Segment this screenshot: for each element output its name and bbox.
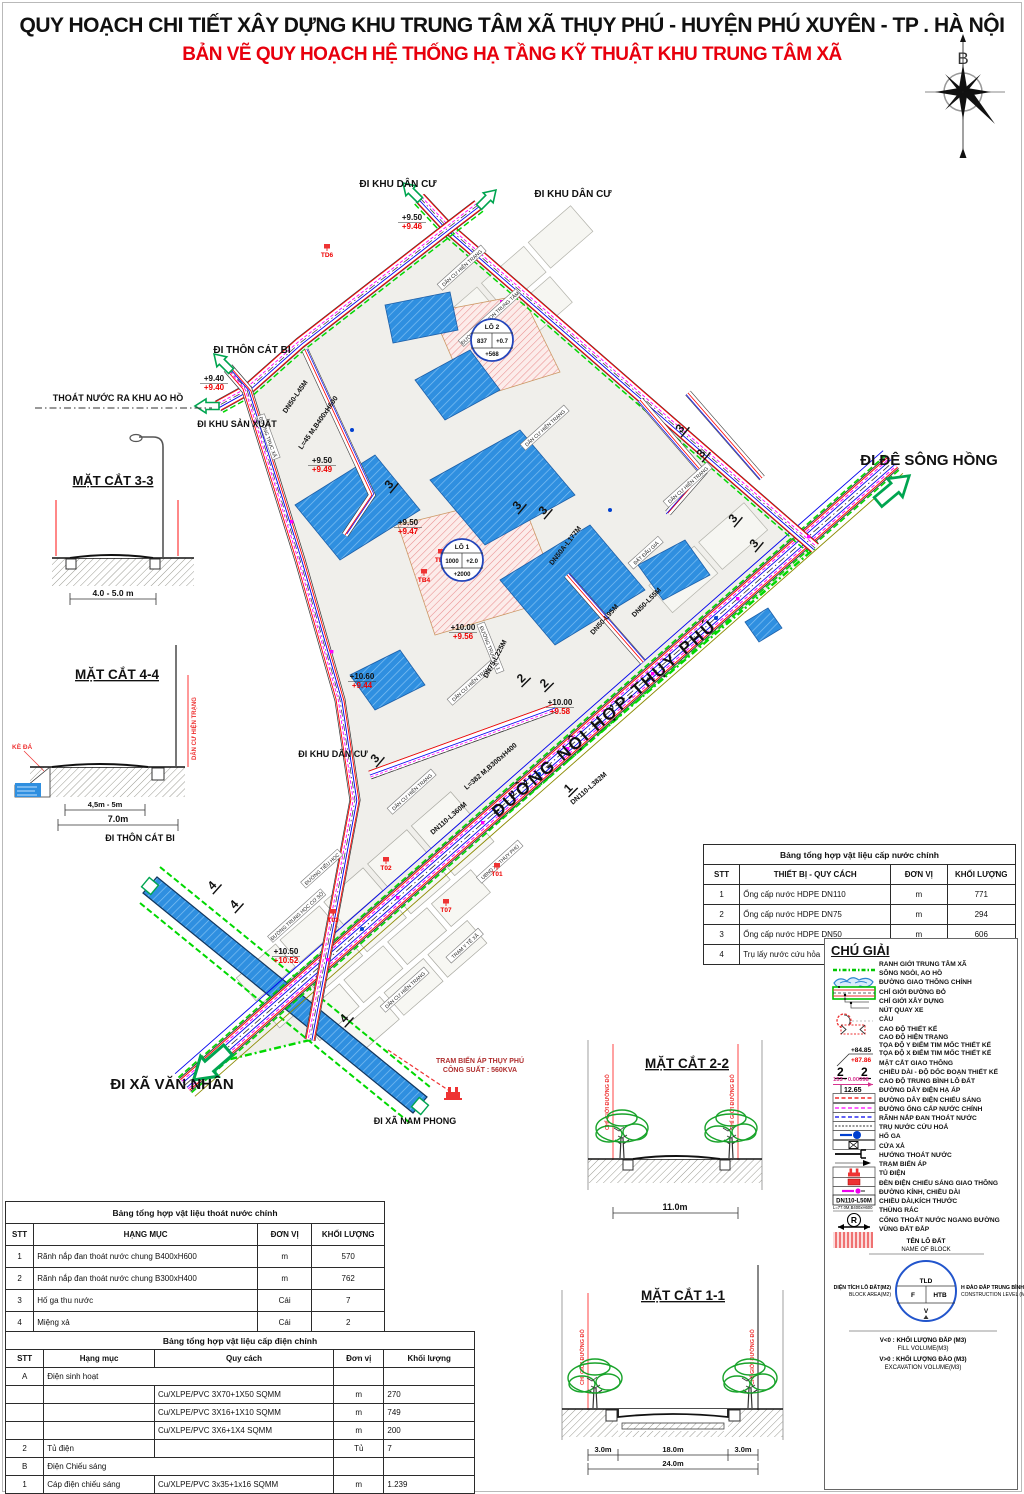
table-cell: 1 (704, 885, 740, 905)
column-header: STT (704, 865, 740, 885)
substation-icon (443, 899, 449, 904)
right-label: DÂN CƯ HIỆN TRẠNG (190, 697, 198, 760)
design-elevation-label: +9.50 (312, 456, 333, 465)
legend-item-label: THÙNG RÁC (879, 1207, 919, 1215)
existing-elevation-label: +9.56 (453, 632, 474, 641)
legend-item-label: ĐƯỜNG KÍNH, CHIỀU DÀI (879, 1189, 960, 1197)
legend-item-label: ĐƯỜNG GIAO THÔNG CHÍNH (879, 979, 972, 987)
table-cell: Tủ điện (44, 1440, 155, 1458)
column-header: Khối lượng (384, 1350, 475, 1368)
svg-text:CONSTRUCTION LEVEL (M): CONSTRUCTION LEVEL (M) (961, 1292, 1024, 1298)
table-cell: 3 (6, 1290, 34, 1312)
table-header-row: STTTHIẾT BỊ - QUY CÁCHĐƠN VỊKHỐI LƯỢNG (704, 865, 1016, 885)
table-header-row: STTHẠNG MỤCĐƠN VỊKHỐI LƯỢNG (6, 1224, 385, 1246)
lot-level: +2.0 (466, 559, 479, 565)
column-header: Đơn vị (334, 1350, 384, 1368)
legend-item-label: TRỤ NƯỚC CỨU HOẢ (879, 1124, 948, 1132)
legend-item-label: CAO ĐỘ THIẾT KẾCAO ĐỘ HIỆN TRẠNGTỌA ĐỘ Y… (879, 1026, 991, 1059)
table-cell (154, 1440, 333, 1458)
legend-item-label: ĐƯỜNG DÂY ĐIỆN HẠ ÁP (879, 1087, 960, 1095)
section-marker: 4 (225, 894, 244, 913)
table-cell: 7 (384, 1440, 475, 1458)
table-cell: 3 (704, 925, 740, 945)
section-marker-number: 4 (205, 878, 220, 893)
table-cell (6, 1422, 44, 1440)
table-row: 2Ống cấp nước HDPE DN75m294 (704, 905, 1016, 925)
table-cell: 4 (704, 945, 740, 965)
legend-item-label: CỬA XẢ (879, 1143, 905, 1151)
drawing-sheet: QUY HOẠCH CHI TIẾT XÂY DỰNG KHU TRUNG TÂ… (0, 0, 1024, 1494)
table-cell: Rãnh nắp đan thoát nước chung B400xH600 (34, 1246, 258, 1268)
lot-name: LÔ 2 (485, 322, 500, 331)
transformer-station-capacity: CÔNG SUẤT : 560KVA (443, 1064, 517, 1074)
legend-item-label: SÔNG NGÒI, AO HỒ (879, 970, 942, 978)
dimension-label: 4.0 - 5.0 m (92, 588, 134, 598)
legend-item: RANH GIỚI TRUNG TÂM XÃ (829, 961, 1013, 969)
table-cell: m (334, 1476, 384, 1494)
svg-text:H ĐÀO ĐẮP TRUNG BÌNH(M): H ĐÀO ĐẮP TRUNG BÌNH(M) (961, 1283, 1024, 1291)
table-cell: Hố ga thu nước (34, 1290, 258, 1312)
column-header: ĐƠN VỊ (891, 865, 947, 885)
lot-symbol: LÔ 11000+2.0+2000 (441, 539, 483, 581)
section-marker-number: 1 (561, 781, 576, 796)
table-cell: m (257, 1246, 311, 1268)
legend-item-label: RÃNH NẮP ĐAN THOÁT NƯỚC (879, 1115, 977, 1123)
table-cell: Rãnh nắp đan thoát nước chung B300xH400 (34, 1268, 258, 1290)
column-header: HẠNG MỤC (34, 1224, 258, 1246)
legend-title: CHÚ GIẢI (831, 943, 1013, 958)
legend-item-label: TRẠM BIẾN ÁP (879, 1161, 927, 1169)
table-row: 2Rãnh nắp đan thoát nước chung B300xH400… (6, 1268, 385, 1290)
column-header: KHỐI LƯỢNG (312, 1224, 385, 1246)
legend-item-label: CHỈ GIỚI ĐƯỜNG ĐỎ (879, 989, 946, 997)
table-cell: Cái (257, 1290, 311, 1312)
dimension-label: 7.0m (108, 814, 129, 824)
svg-text:+84.85: +84.85 (851, 1047, 871, 1054)
svg-text:TLD: TLD (920, 1278, 933, 1285)
design-elevation-label: +10.60 (350, 672, 375, 681)
water-icon (15, 783, 41, 797)
cross-section-2-2: MẶT CẮT 2-2 CHỈ GIỚI ĐƯỜNG ĐỎ CHỈ GIỚI Đ… (565, 1030, 810, 1235)
svg-text:V>0 : KHỐI LƯỢNG ĐÀO (M3): V>0 : KHỐI LƯỢNG ĐÀO (M3) (879, 1356, 966, 1363)
table-cell (384, 1368, 475, 1386)
direction-label: THOÁT NƯỚC RA KHU AO HỒ (53, 392, 183, 403)
table-cell: Ống cấp nước HDPE DN110 (740, 885, 891, 905)
existing-elevation-label: +10.52 (274, 956, 299, 965)
legend-item-label: TỦ ĐIỆN (879, 1170, 905, 1178)
table-cell: 270 (384, 1386, 475, 1404)
substation-label: T02 (380, 865, 392, 872)
table-row: BĐiện Chiếu sáng (6, 1458, 475, 1476)
table-cell: m (334, 1386, 384, 1404)
cross-section-4-4: MẶT CẮT 4-4 KÈ ĐÁ DÂN CƯ HIỆN TRẠNG 4,5m… (10, 645, 210, 840)
svg-text:V<0 : KHỐI LƯỢNG ĐẮP (M3): V<0 : KHỐI LƯỢNG ĐẮP (M3) (880, 1336, 966, 1344)
dim-total: 24.0m (662, 1459, 684, 1468)
table-cell: B (6, 1458, 44, 1476)
section-title: MẶT CẮT 3-3 (73, 473, 154, 488)
column-header: STT (6, 1350, 44, 1368)
table-cell: Ống cấp nước HDPE DN75 (740, 905, 891, 925)
dimension-label: 11.0m (662, 1202, 687, 1212)
section-marker: 1 (559, 778, 578, 797)
table-cell: Cu/XLPE/PVC 3X6+1X4 SQMM (154, 1422, 333, 1440)
existing-elevation-label: +9.44 (352, 681, 373, 690)
table-cell: Điện Chiếu sáng (44, 1458, 334, 1476)
table-row: Cu/XLPE/PVC 3X70+1X50 SQMMm270 (6, 1386, 475, 1404)
legend-item-label: ĐÈN ĐIỆN CHIẾU SÁNG GIAO THÔNG (879, 1180, 998, 1188)
cross-section-1-1: MẶT CẮT 1-1 CHỈ GIỚI ĐƯỜNG ĐỎ CHỈ GIỚI Đ… (550, 1265, 830, 1480)
table-cell: 2 (6, 1268, 34, 1290)
svg-text:DIỆN TÍCH LÔ ĐẤT(M2): DIỆN TÍCH LÔ ĐẤT(M2) (834, 1283, 892, 1291)
table-title-row: Bảng tổng hợp vật liệu cấp nước chính (704, 845, 1016, 865)
existing-elevation-label: +9.58 (550, 707, 571, 716)
table-cell: 7 (312, 1290, 385, 1312)
direction-label: ĐI KHU DÂN CƯ (298, 748, 368, 759)
lot-volume: +2000 (454, 572, 472, 578)
lot-level: +0.7 (496, 339, 509, 345)
cross-section-3-3: MẶT CẮT 3-3 4.0 - 5.0 m (50, 425, 200, 610)
legend-item-label: ĐƯỜNG ỐNG CẤP NƯỚC CHÍNH (879, 1106, 982, 1114)
table-cell (334, 1458, 384, 1476)
legend-panel: CHÚ GIẢI RANH GIỚI TRUNG TÂM XÃSÔNG NGÒI… (824, 938, 1018, 1490)
lot-area: 837 (477, 339, 488, 345)
table-cell: Cu/XLPE/PVC 3x35+1x16 SQMM (154, 1476, 333, 1494)
section-marker: 4 (203, 875, 222, 894)
table-cell (384, 1458, 475, 1476)
design-elevation-label: +10.50 (274, 947, 299, 956)
table-title-row: Bảng tổng hợp vật liệu cấp điện chính (6, 1332, 475, 1350)
table-cell: m (334, 1422, 384, 1440)
svg-text:HTB: HTB (933, 1292, 947, 1299)
red-line-label-2: CHỈ GIỚI ĐƯỜNG ĐỎ (728, 1073, 736, 1130)
legend-item-label: HỐ GA (879, 1133, 901, 1141)
table-cell: m (891, 885, 947, 905)
substation-label: TD6 (321, 252, 334, 259)
legend-item-label: CẦU (879, 1016, 893, 1024)
legend-item-label: VÙNG ĐẤT ĐẮP (879, 1226, 929, 1234)
column-header: THIẾT BỊ - QUY CÁCH (740, 865, 891, 885)
design-elevation-label: +10.00 (451, 623, 476, 632)
table-cell: A (6, 1368, 44, 1386)
column-header: ĐƠN VỊ (257, 1224, 311, 1246)
table-cell: m (257, 1268, 311, 1290)
table-title: Bảng tổng hợp vật liệu cấp điện chính (6, 1332, 475, 1350)
column-header: STT (6, 1224, 34, 1246)
design-elevation-label: +9.50 (402, 213, 423, 222)
legend-item-label: CHỈ GIỚI XÂY DỰNG (879, 998, 944, 1006)
table-cell (44, 1422, 155, 1440)
table-cell: 1 (6, 1476, 44, 1494)
svg-text:F: F (911, 1292, 915, 1299)
direction-label: ĐI KHU DÂN CƯ (359, 177, 437, 190)
legend-item-label: CỐNG THOÁT NƯỚC NGANG ĐƯỜNG (879, 1217, 1000, 1225)
table: Bảng tổng hợp vật liệu cấp điện chínhSTT… (5, 1331, 475, 1494)
table-row: AĐiện sinh hoạt (6, 1368, 475, 1386)
table-header-row: STTHạng mụcQuy cáchĐơn vịKhối lượng (6, 1350, 475, 1368)
table-cell: 1.239 (384, 1476, 475, 1494)
legend-item-label: CHIỀU DÀI,KÍCH THƯỚC (879, 1198, 957, 1206)
table-title: Bảng tổng hợp vật liệu thoát nước chính (6, 1202, 385, 1224)
legend-item-label: CAO ĐỘ TRUNG BÌNH LÔ ĐẤT (879, 1078, 975, 1086)
substation-icon (494, 863, 500, 868)
substation-label: T01 (491, 871, 503, 878)
table-cell: 2 (6, 1440, 44, 1458)
substation-icon (421, 569, 427, 574)
fill-area-icon (831, 1230, 877, 1250)
dim-right: 3.0m (734, 1445, 751, 1454)
table-cell: 200 (384, 1422, 475, 1440)
table-cell: 762 (312, 1268, 385, 1290)
table-cell (6, 1404, 44, 1422)
design-elevation-label: +10.00 (548, 698, 573, 707)
substation-icon (383, 857, 389, 862)
table-cell: 771 (947, 885, 1016, 905)
table-cell: 749 (384, 1404, 475, 1422)
table-row: 3Hố ga thu nướcCái7 (6, 1290, 385, 1312)
table-cell: Điện sinh hoạt (44, 1368, 334, 1386)
legend-item-label: MẶT CẮT GIAO THÔNG (879, 1060, 953, 1068)
substation-icon (330, 909, 336, 914)
table-cell: 570 (312, 1246, 385, 1268)
embankment-label: KÈ ĐÁ (12, 742, 33, 751)
existing-elevation-label: +9.46 (402, 222, 423, 231)
section-title: MẶT CẮT 2-2 (645, 1056, 729, 1071)
electric-table: Bảng tổng hợp vật liệu cấp điện chínhSTT… (5, 1331, 475, 1494)
column-header: Quy cách (154, 1350, 333, 1368)
table-row: 1Ống cấp nước HDPE DN110m771 (704, 885, 1016, 905)
transformer-station-label: TRAM BIẾN ÁP THỤY PHÚ (436, 1055, 524, 1065)
lot-name: LÔ 1 (455, 542, 470, 551)
lot-area: 1000 (445, 559, 459, 565)
svg-text:EXCAVATION VOLUME(M3): EXCAVATION VOLUME(M3) (885, 1365, 962, 1371)
table-cell (334, 1368, 384, 1386)
design-elevation-label: +9.40 (204, 374, 225, 383)
section-title: MẶT CẮT 1-1 (641, 1288, 725, 1303)
table-title: Bảng tổng hợp vật liệu cấp nước chính (704, 845, 1016, 865)
legend-item-label: RANH GIỚI TRUNG TÂM XÃ (879, 961, 967, 969)
existing-elevation-label: +9.40 (204, 383, 225, 392)
svg-text:NAME OF BLOCK: NAME OF BLOCK (901, 1247, 950, 1253)
direction-label: ĐI KHU SẢN XUẤT (197, 418, 277, 429)
substation-label: T03 (327, 917, 339, 924)
table-cell: Tủ (334, 1440, 384, 1458)
table-cell: Cu/XLPE/PVC 3X16+1X10 SQMM (154, 1404, 333, 1422)
svg-text:TÊN LÔ ĐẤT: TÊN LÔ ĐẤT (907, 1235, 946, 1245)
bridge-icon (831, 1021, 877, 1037)
svg-text:L=77.0M,B400xH600: L=77.0M,B400xH600 (833, 1205, 873, 1210)
column-header: KHỐI LƯỢNG (947, 865, 1016, 885)
legend-item-label: CHIỀU DÀI - ĐỘ DỐC ĐOẠN THIẾT KẾ (879, 1069, 998, 1077)
existing-elevation-label: +9.47 (398, 527, 419, 536)
table-row: 2Tủ điệnTủ7 (6, 1440, 475, 1458)
red-line-label: CHỈ GIỚI ĐƯỜNG ĐỎ (603, 1073, 611, 1130)
table-row: 1Cáp điện chiếu sángCu/XLPE/PVC 3x35+1x1… (6, 1476, 475, 1494)
table-cell: 1 (6, 1246, 34, 1268)
design-elevation-label: +9.50 (398, 518, 419, 527)
table-cell (44, 1386, 155, 1404)
substation-label: T07 (440, 907, 452, 914)
table-cell: m (334, 1404, 384, 1422)
table-cell (6, 1386, 44, 1404)
dimension-label: 4,5m - 5m (88, 800, 123, 809)
dim-center: 18.0m (662, 1445, 684, 1454)
table-cell (44, 1404, 155, 1422)
direction-label: ĐI ĐÊ SÔNG HỒNG (860, 451, 998, 469)
dim-left: 3.0m (594, 1445, 611, 1454)
table-row: Cu/XLPE/PVC 3X6+1X4 SQMMm200 (6, 1422, 475, 1440)
direction-label: ĐI KHU DÂN CƯ (534, 187, 612, 200)
svg-text:V: V (924, 1308, 929, 1315)
direction-label: ĐI XÃ VĂN NHÂN (110, 1075, 233, 1093)
existing-elevation-label: +9.49 (312, 465, 333, 474)
lot-volume: +568 (485, 352, 499, 358)
table-row: 1Rãnh nắp đan thoát nước chung B400xH600… (6, 1246, 385, 1268)
table-cell: 294 (947, 905, 1016, 925)
lot-symbol: LÔ 2837+0.7+568 (471, 319, 513, 361)
column-header: Hạng mục (44, 1350, 155, 1368)
direction-label: ĐI XÃ NAM PHONG (374, 1116, 457, 1126)
substation-label: TB4 (418, 577, 431, 584)
substation-icon (324, 244, 330, 249)
legend-item-label: NÚT QUAY XE (879, 1007, 923, 1015)
table-cell: Cu/XLPE/PVC 3X70+1X50 SQMM (154, 1386, 333, 1404)
table-cell: 2 (704, 905, 740, 925)
table-row: Cu/XLPE/PVC 3X16+1X10 SQMMm749 (6, 1404, 475, 1422)
legend-block-diagram: TÊN LÔ ĐẤT NAME OF BLOCK TLD F HTB V DIỆ… (829, 1235, 1013, 1393)
section-title: MẶT CẮT 4-4 (75, 667, 159, 682)
table-cell: m (891, 905, 947, 925)
pipe-label: DN110-L382M (570, 771, 609, 806)
legend-item-label: ĐƯỜNG DÂY ĐIỆN CHIẾU SÁNG (879, 1097, 981, 1105)
section-marker-number: 4 (227, 897, 242, 912)
lamp-post-icon (130, 435, 163, 558)
table-title-row: Bảng tổng hợp vật liệu thoát nước chính (6, 1202, 385, 1224)
legend-item-label: HƯỚNG THOÁT NƯỚC (879, 1152, 952, 1160)
direction-label: ĐI THÔN CÁT BI (213, 343, 290, 356)
svg-text:FILL VOLUME(M3): FILL VOLUME(M3) (897, 1346, 948, 1352)
table-cell: Cáp điện chiếu sáng (44, 1476, 155, 1494)
svg-text:BLOCK AREA(M2): BLOCK AREA(M2) (849, 1292, 891, 1298)
